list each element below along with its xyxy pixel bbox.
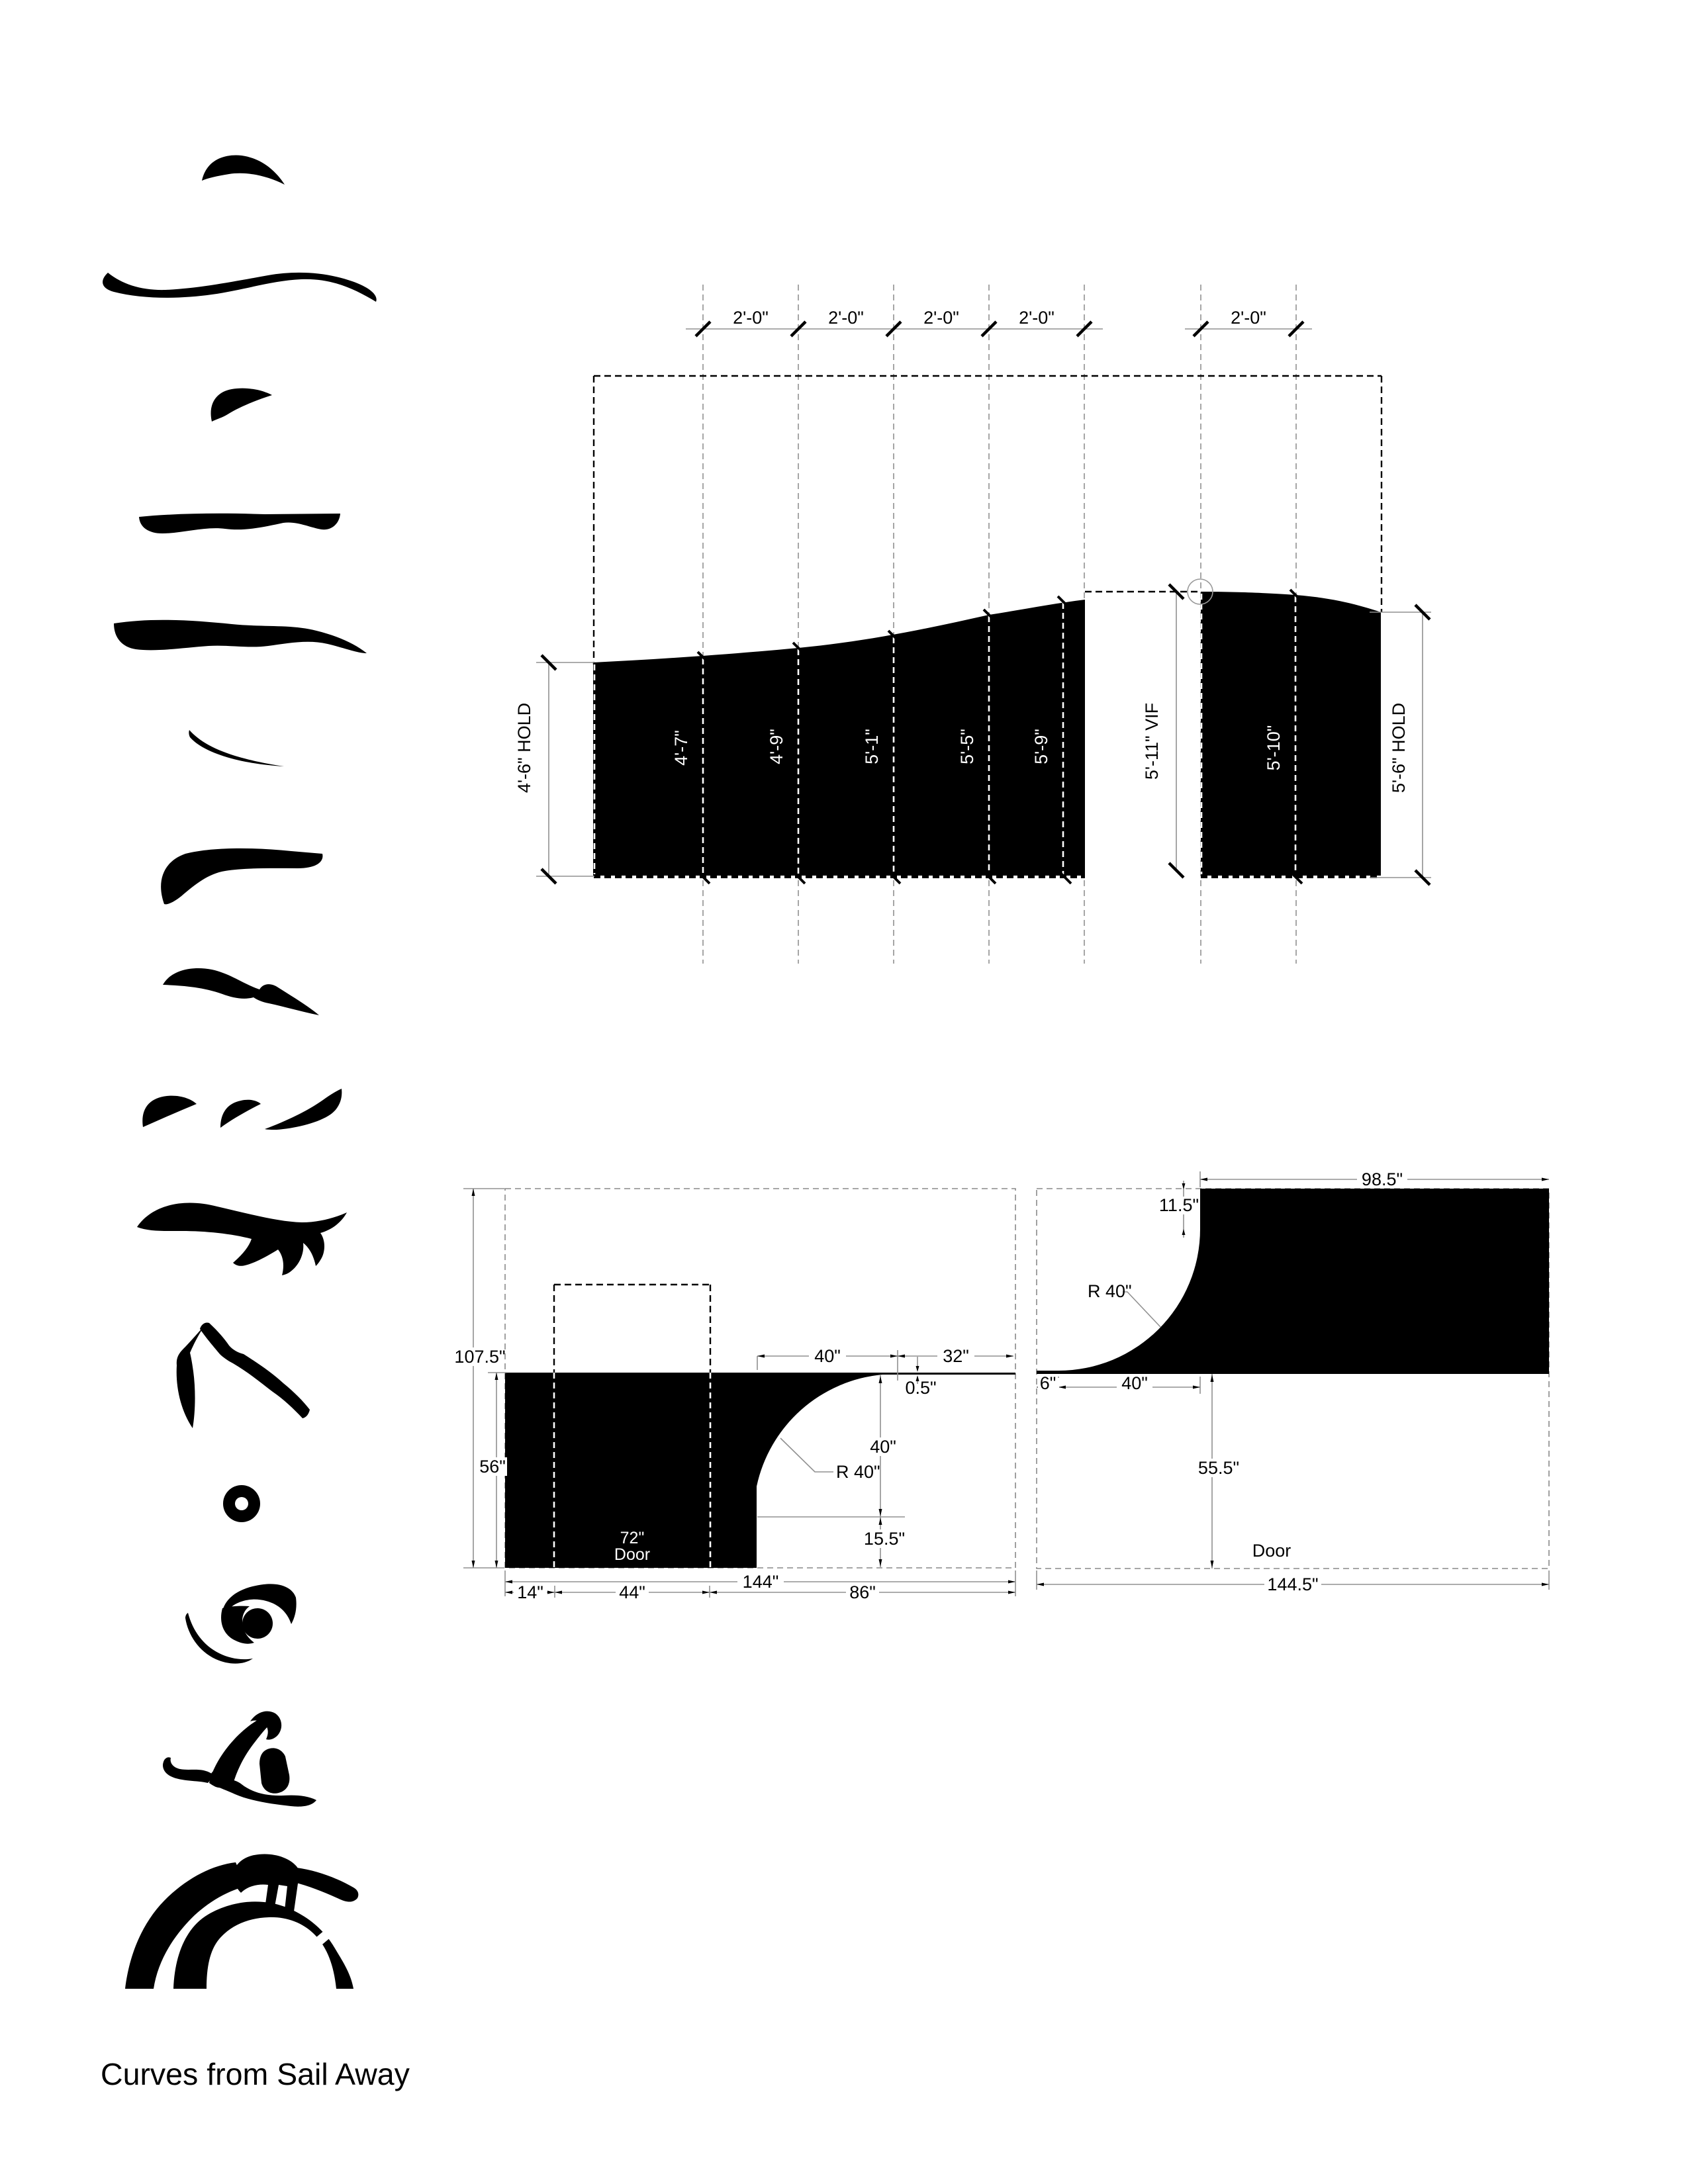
svg-text:6": 6" [1040, 1373, 1056, 1393]
svg-text:40": 40" [814, 1346, 841, 1366]
svg-text:11.5": 11.5" [1159, 1195, 1199, 1215]
svg-text:5'-6" HOLD: 5'-6" HOLD [1389, 703, 1409, 793]
svg-text:40": 40" [870, 1437, 896, 1457]
svg-text:56": 56" [479, 1457, 506, 1477]
svg-text:Door: Door [614, 1545, 650, 1564]
svg-text:Curves from Sail Away: Curves from Sail Away [101, 2057, 410, 2091]
svg-text:5'-11" VIF: 5'-11" VIF [1142, 703, 1162, 780]
svg-text:144.5": 144.5" [1267, 1574, 1318, 1594]
svg-text:R 40": R 40" [836, 1462, 880, 1482]
svg-text:5'-5": 5'-5" [957, 729, 977, 764]
svg-text:2'-0": 2'-0" [828, 308, 864, 328]
svg-text:2'-0": 2'-0" [733, 308, 769, 328]
svg-text:144": 144" [743, 1572, 779, 1592]
svg-text:2'-0": 2'-0" [1019, 308, 1055, 328]
svg-text:5'-10": 5'-10" [1264, 725, 1284, 771]
svg-text:R 40": R 40" [1088, 1281, 1132, 1301]
svg-text:107.5": 107.5" [454, 1347, 505, 1367]
svg-text:2'-0": 2'-0" [1231, 308, 1266, 328]
svg-text:98.5": 98.5" [1362, 1169, 1403, 1189]
svg-text:5'-9": 5'-9" [1031, 729, 1051, 764]
svg-text:4'-9": 4'-9" [767, 729, 786, 764]
svg-text:44": 44" [619, 1582, 645, 1602]
svg-text:32": 32" [943, 1346, 969, 1366]
svg-text:40": 40" [1121, 1373, 1148, 1393]
svg-text:72": 72" [620, 1529, 645, 1547]
svg-text:Door: Door [1252, 1541, 1291, 1561]
svg-text:5'-1": 5'-1" [862, 729, 882, 764]
svg-text:2'-0": 2'-0" [923, 308, 959, 328]
svg-text:15.5": 15.5" [864, 1529, 905, 1549]
svg-text:86": 86" [849, 1582, 876, 1602]
svg-text:4'-7": 4'-7" [671, 730, 691, 766]
svg-text:4'-6" HOLD: 4'-6" HOLD [514, 703, 534, 793]
svg-text:14": 14" [517, 1582, 543, 1602]
svg-text:55.5": 55.5" [1198, 1458, 1239, 1478]
svg-text:0.5": 0.5" [905, 1378, 936, 1398]
